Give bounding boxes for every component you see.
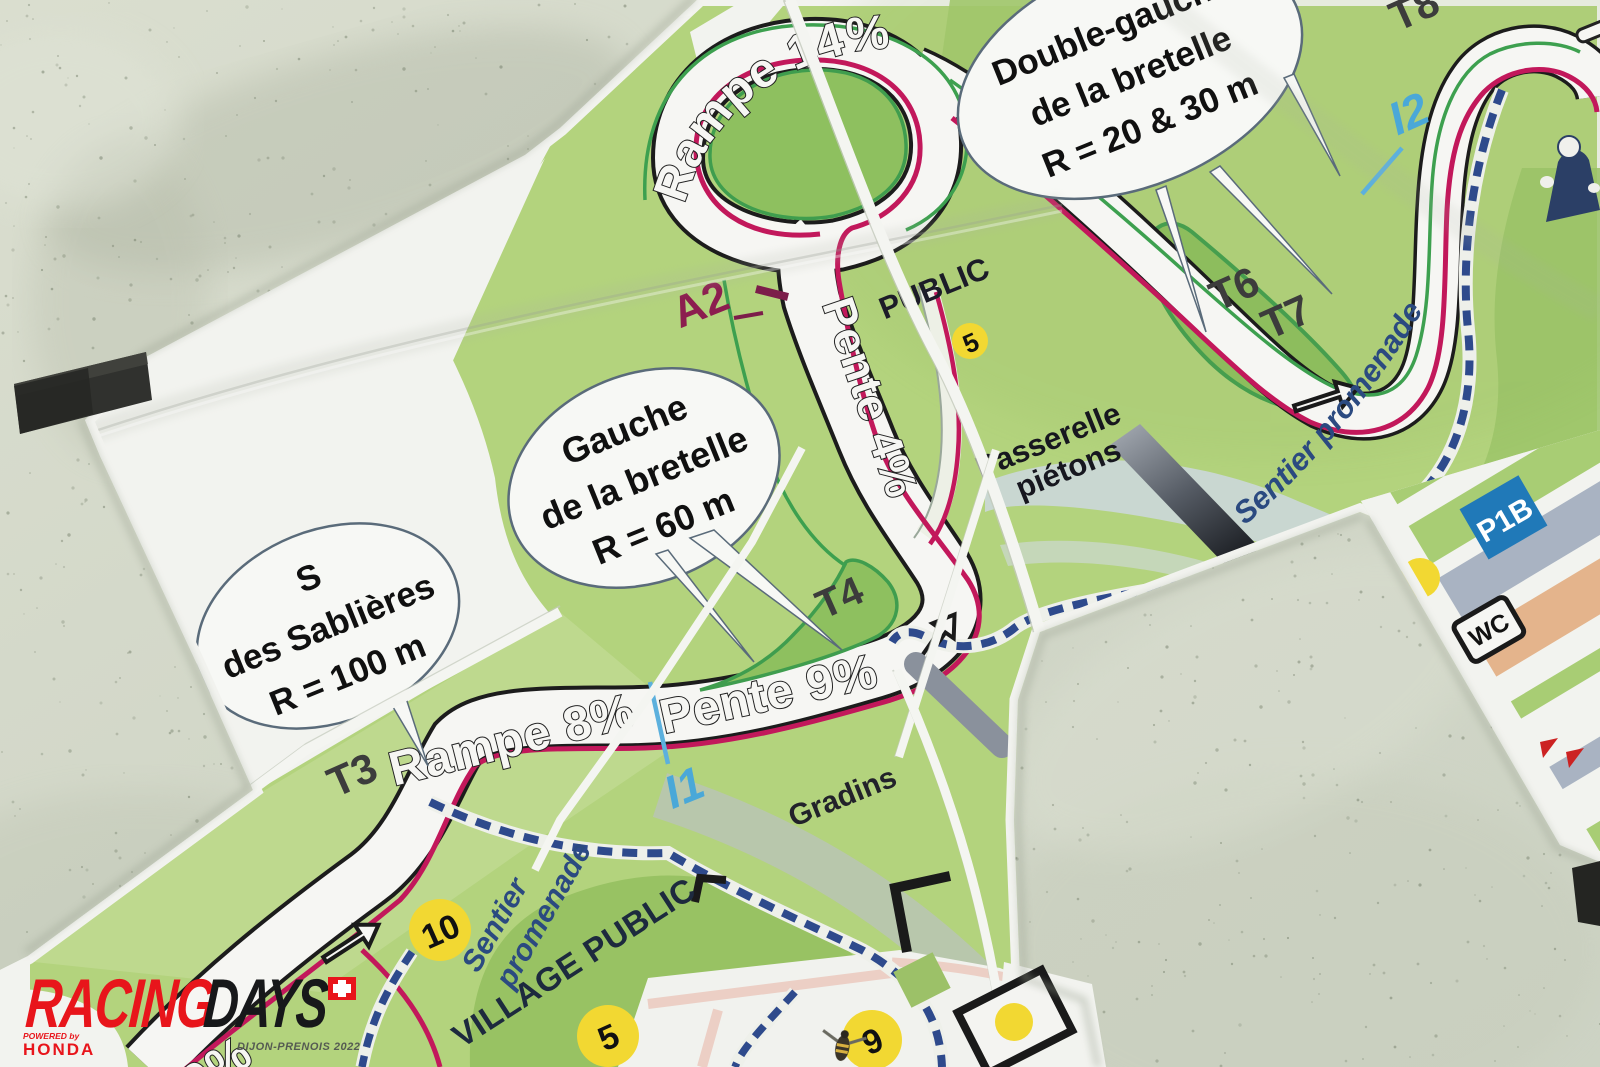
svg-text:DIJON-PRENOIS 2022: DIJON-PRENOIS 2022: [237, 1041, 360, 1053]
svg-text:DAYS: DAYS: [201, 965, 331, 1042]
svg-text:HONDA: HONDA: [23, 1040, 95, 1059]
